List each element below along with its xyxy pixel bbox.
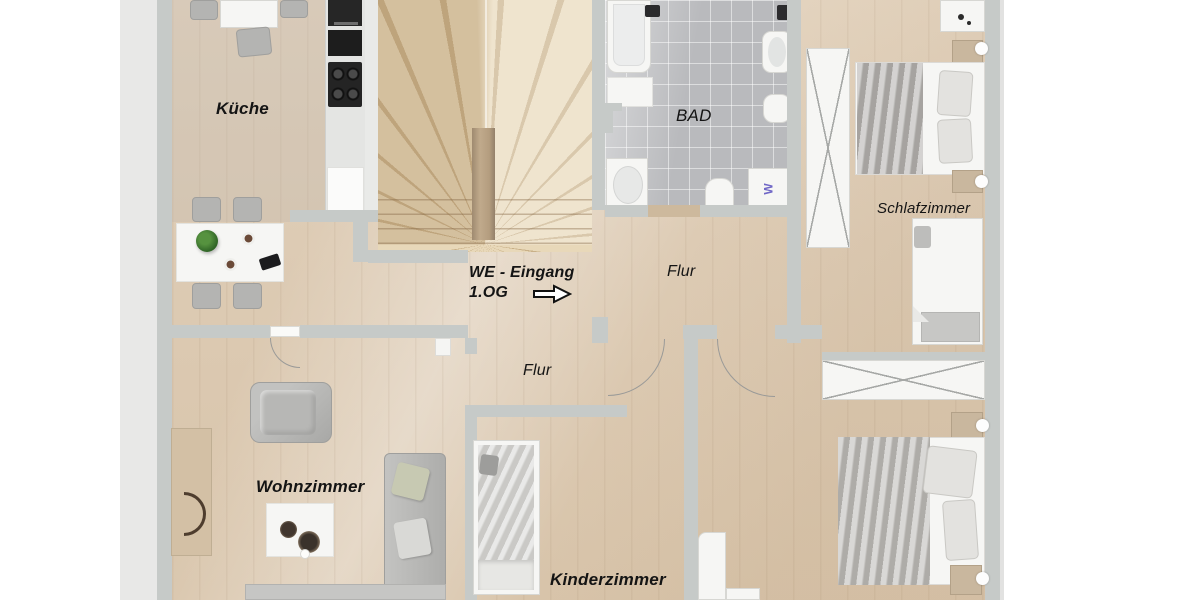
kitchen-cooktop <box>328 62 362 107</box>
bed-blanket <box>857 63 923 174</box>
nightstand-knob <box>976 572 989 585</box>
nightstand-knob <box>975 42 988 55</box>
entrance-label-line2: 1.OG <box>469 284 508 302</box>
cup-icon <box>300 549 310 559</box>
wall-stub <box>353 212 368 262</box>
wall-bath-bedroom <box>787 0 801 343</box>
chair <box>190 0 218 20</box>
entrance-label-line1: WE - Eingang <box>469 264 575 282</box>
nightstand-knob <box>975 175 988 188</box>
wall-outer-right <box>985 0 1000 600</box>
plate-icon <box>224 258 237 271</box>
kitchen-oven <box>328 30 362 56</box>
entrance-arrow-icon <box>532 284 572 304</box>
desk-item-icon <box>967 21 971 25</box>
bed-blanket <box>838 437 930 585</box>
stair-center-spine <box>472 128 495 240</box>
chair <box>192 197 221 222</box>
bath-door-sill <box>648 205 700 217</box>
door-leaf <box>270 326 300 337</box>
room-label-flur-lower: Flur <box>523 362 551 380</box>
wall-kinderzimmer-top <box>465 405 627 417</box>
room-label-kinderzimmer: Kinderzimmer <box>550 570 666 590</box>
wall-stub <box>592 317 608 343</box>
pillow <box>936 70 973 117</box>
outer-band-left <box>120 0 157 600</box>
room-label-kueche: Küche <box>216 99 269 119</box>
tub-faucet-icon <box>645 5 660 17</box>
wardrobe <box>806 48 850 248</box>
stair-flight-divider <box>485 0 487 132</box>
pillow <box>914 226 931 248</box>
bath-sink-bowl <box>613 166 643 204</box>
wardrobe <box>822 360 985 400</box>
dining-table <box>176 223 284 282</box>
desk-chair <box>726 588 760 600</box>
chair <box>236 26 273 57</box>
sofa-pillow <box>393 517 432 559</box>
pillow <box>937 118 973 164</box>
washing-machine: W <box>748 168 790 210</box>
room-label-bad: BAD <box>676 106 712 126</box>
wall-livingroom-top <box>171 325 270 338</box>
wall-flur-bottom <box>300 325 468 338</box>
pillow <box>479 454 500 476</box>
wall-bath-bottom <box>605 205 648 217</box>
wall-kitchen-stairs <box>365 0 378 212</box>
kitchen-faucet-icon <box>334 22 358 25</box>
child-bed-foot <box>478 560 534 590</box>
floor-plan: W <box>0 0 1200 600</box>
desk <box>698 532 726 600</box>
wall-stub <box>465 338 477 354</box>
bathtub-inner <box>613 4 645 66</box>
wall-kinderzimmer-bedroom <box>684 332 698 600</box>
outer-band-right <box>1000 0 1004 600</box>
toilet-bowl <box>768 37 786 67</box>
sofa-bottom-section <box>245 584 446 600</box>
washer-logo: W <box>762 183 776 194</box>
room-label-flur-upper: Flur <box>667 263 695 281</box>
sideboard <box>171 428 212 556</box>
plant-icon <box>196 230 218 252</box>
wall-bath-bottom <box>700 205 787 217</box>
armchair-seat <box>260 390 316 435</box>
desk-item-icon <box>958 14 964 20</box>
nightstand-knob <box>976 419 989 432</box>
chair <box>280 0 308 18</box>
bath-partition-wall <box>605 103 613 133</box>
room-label-schlafzimmer: Schlafzimmer <box>877 200 970 217</box>
wall-segment <box>775 325 822 339</box>
bed-foot-mat <box>921 312 980 342</box>
room-label-wohnzimmer: Wohnzimmer <box>256 477 364 497</box>
wall-under-stairs <box>368 250 468 263</box>
wall-outer-left <box>157 0 172 600</box>
door-leaf <box>435 338 451 356</box>
wall-stairs-bath <box>592 0 605 210</box>
chair <box>233 197 262 222</box>
kitchen-dishwasher <box>327 167 364 212</box>
bowl-icon <box>280 521 297 538</box>
pillow <box>922 445 977 499</box>
staircase <box>378 0 592 252</box>
kitchen-table <box>220 0 278 28</box>
chair <box>233 283 262 309</box>
pillow <box>942 499 979 561</box>
chair <box>192 283 221 309</box>
plate-icon <box>242 232 255 245</box>
